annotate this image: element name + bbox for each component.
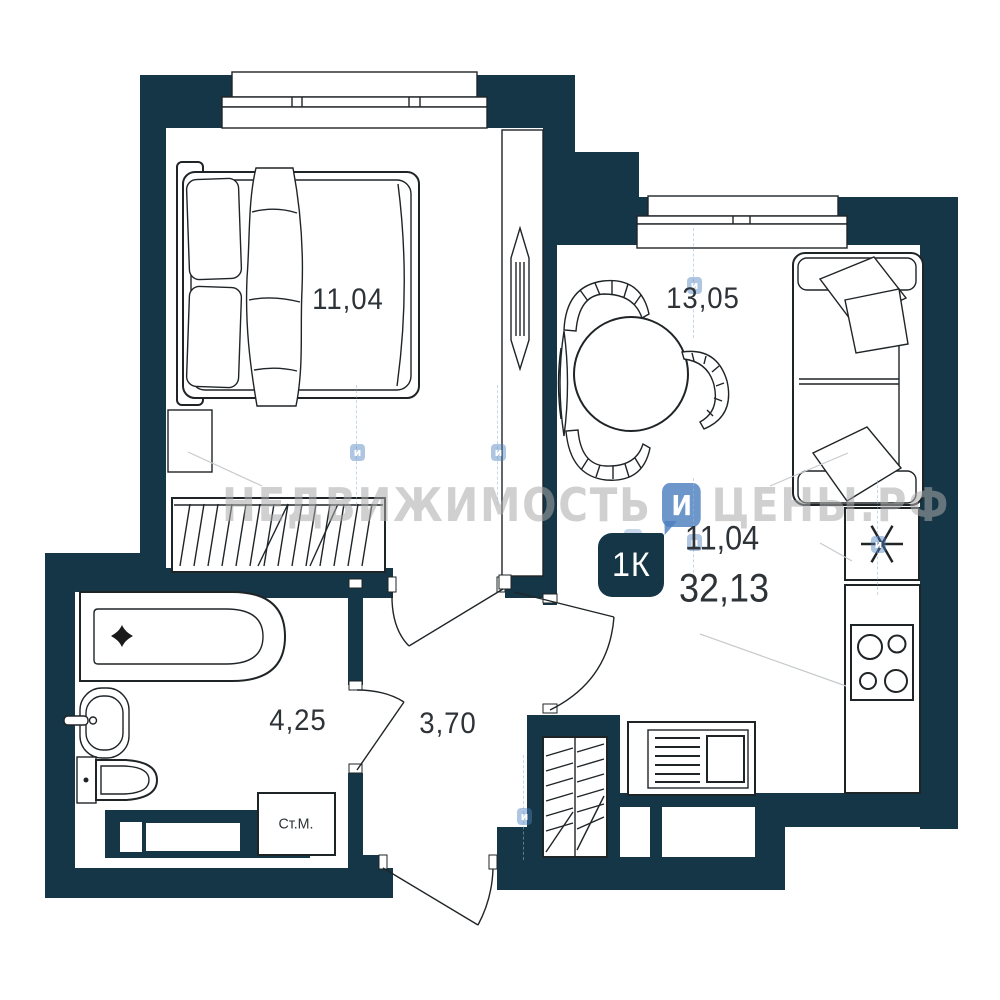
- door-jamb: [388, 577, 396, 592]
- wall: [920, 197, 958, 829]
- living-door: [514, 592, 614, 710]
- wall: [45, 868, 393, 898]
- kitchen-sink-unit: [845, 508, 919, 580]
- bathtub: [80, 592, 285, 681]
- wall-notch: [620, 807, 650, 857]
- apartment-type-badge: 1К: [598, 533, 664, 597]
- kitchen-cabinet: [628, 722, 755, 795]
- wall: [543, 75, 575, 245]
- wall: [543, 245, 557, 605]
- window-frame: [637, 216, 847, 224]
- wall: [607, 737, 620, 793]
- floor-plan-page: НЕДВИЖИМОСТЬ И ЦЕНЫ.РФ и и и и и и и 11,…: [0, 0, 1000, 1000]
- door-jamb: [543, 704, 557, 713]
- door-jamb: [489, 855, 497, 869]
- dining-table: [574, 317, 688, 431]
- hall-closet: [543, 737, 607, 857]
- chair: [559, 331, 568, 436]
- bedroom-closet: [172, 498, 385, 572]
- washing-machine-label: Ст.М.: [278, 816, 313, 833]
- chair: [566, 430, 650, 480]
- bedroom-door: [392, 589, 503, 646]
- apartment-type-label: 1К: [612, 546, 651, 585]
- hallway-area-label: 3,70: [419, 707, 476, 741]
- door-jamb: [349, 681, 362, 690]
- entrance-door: [383, 868, 493, 925]
- wall: [348, 592, 363, 685]
- living-kitchen-area-label: 13,05: [666, 282, 740, 316]
- bedside-table: [168, 410, 212, 472]
- window-inner-sill: [222, 107, 487, 128]
- floor-plan-drawing: [0, 0, 1000, 1000]
- chair: [682, 351, 729, 429]
- basin-faucet: [64, 716, 88, 725]
- window-outer-sill: [232, 72, 477, 97]
- bathroom-area-label: 4,25: [269, 704, 326, 738]
- sofa: [793, 253, 923, 505]
- window-outer-sill: [648, 196, 838, 216]
- apartment-total-area: 32,13: [679, 567, 769, 612]
- wall-notch: [662, 807, 755, 857]
- door-jamb: [379, 855, 387, 869]
- bedroom-window: [222, 72, 487, 128]
- toilet: [77, 757, 157, 803]
- bedroom-area-label: 11,04: [312, 283, 384, 317]
- wall: [140, 75, 166, 568]
- window-inner-sill: [637, 224, 847, 248]
- bed-pillow: [186, 178, 241, 280]
- sofa-pillow: [845, 289, 908, 353]
- living-window: [637, 196, 847, 248]
- wall: [348, 773, 363, 868]
- bed-pillow: [186, 286, 241, 388]
- sliding-door: [502, 130, 543, 576]
- bathroom-door: [357, 690, 404, 770]
- door-jamb: [349, 579, 362, 588]
- door-jamb: [499, 575, 511, 589]
- apartment-living-area: 11,04: [685, 520, 759, 559]
- wall: [607, 793, 958, 827]
- stove: [851, 625, 913, 700]
- wall: [575, 152, 639, 245]
- window-frame: [222, 97, 487, 107]
